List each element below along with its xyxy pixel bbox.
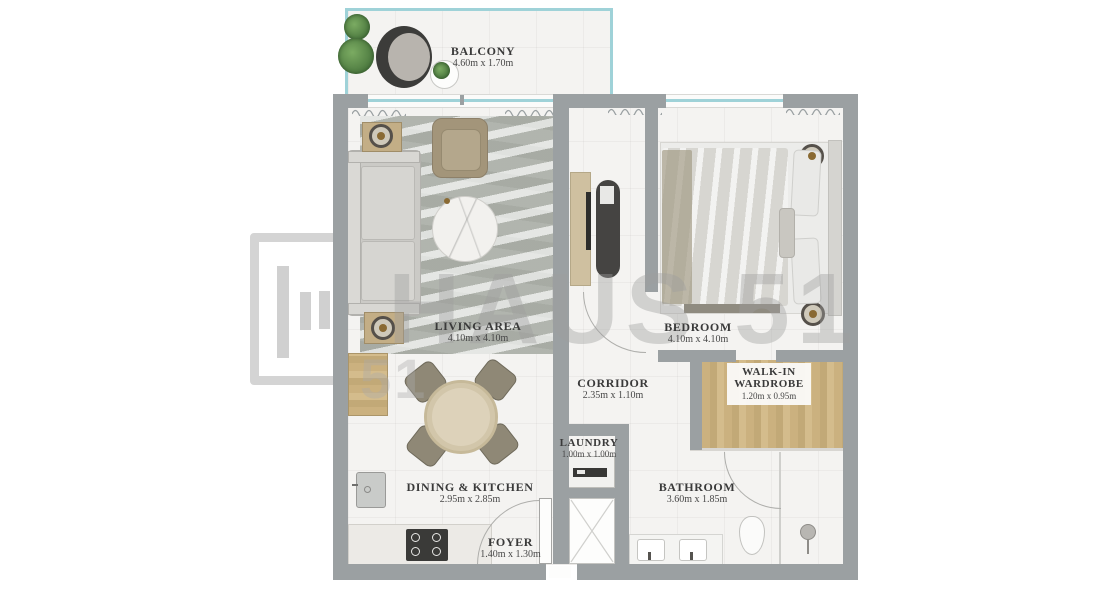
faucet (648, 552, 651, 560)
bedroom-dims: 4.10m x 4.10m (638, 334, 758, 347)
stove-burner (432, 547, 441, 556)
armchair (432, 118, 488, 178)
bed-blanket-fold (662, 150, 692, 304)
corridor-name: CORRIDOR (558, 377, 668, 390)
dining-table (424, 380, 498, 454)
table-lamp-center (379, 324, 387, 332)
insulation-hatch (786, 106, 840, 115)
watermark-logo-bar (277, 266, 289, 358)
nightstand-lamp-center (809, 310, 817, 318)
living-area-dims: 4.10m x 4.10m (408, 333, 548, 346)
bedroom-name: BEDROOM (638, 321, 758, 334)
sofa-armrest (348, 151, 420, 163)
bathroom-vanity (629, 534, 723, 566)
stove-burner (432, 533, 441, 542)
bedroom-label: BEDROOM 4.10m x 4.10m (638, 321, 758, 347)
entrance-recess (549, 566, 571, 578)
balcony-dims: 4.60m x 1.70m (423, 58, 543, 71)
living-area-label: LIVING AREA 4.10m x 4.10m (408, 320, 548, 346)
living-window-mullion (460, 95, 464, 105)
wall-right (843, 94, 858, 580)
bed-pillow (790, 237, 821, 304)
corridor-dims: 2.35m x 1.10m (558, 390, 668, 403)
bathroom-dims: 3.60m x 1.85m (637, 494, 757, 507)
stove-burner (411, 547, 420, 556)
sink (637, 539, 665, 561)
wall-corridor-bedroom (645, 108, 658, 292)
armchair-seat (441, 129, 481, 171)
wardrobe-name: WALK-IN WARDROBE (730, 366, 808, 391)
stove (406, 529, 448, 561)
wall-bedroom-bottom-b (776, 350, 843, 362)
balcony-plant (344, 14, 370, 40)
tv (586, 192, 591, 250)
wall-bottom-left (333, 564, 546, 580)
dining-kitchen-dims: 2.95m x 2.85m (395, 494, 545, 507)
corridor-label: CORRIDOR 2.35m x 1.10m (558, 377, 668, 403)
living-area-name: LIVING AREA (408, 320, 548, 333)
kitchen-wood-cabinet (348, 353, 388, 416)
coffee-table (432, 196, 498, 262)
sink (679, 539, 707, 561)
corridor-runner-label (600, 186, 614, 204)
bed-foot-bench (684, 304, 780, 313)
insulation-hatch (505, 107, 559, 116)
bed-headboard (828, 140, 842, 316)
foyer-dims: 1.40m x 1.30m (458, 549, 563, 562)
bed-cushion (779, 208, 795, 258)
table-lamp-center (377, 132, 385, 140)
watermark-logo-bar (300, 292, 311, 330)
kitchen-appliance (356, 472, 386, 508)
foyer-name: FOYER (458, 536, 563, 549)
coffee-table-accent (444, 198, 450, 204)
balcony-label: BALCONY 4.60m x 1.70m (423, 45, 543, 71)
bedroom-window-glass (666, 99, 783, 102)
bathroom-label: BATHROOM 3.60m x 1.85m (637, 481, 757, 507)
laundry-name: LAUNDRY (549, 437, 629, 449)
floor-plan-canvas: HAUS 51 51 (0, 0, 1100, 600)
dining-kitchen-name: DINING & KITCHEN (395, 481, 545, 494)
shaft-cross (569, 498, 615, 564)
nightstand-lamp-center (808, 152, 816, 160)
balcony-glass-top (345, 8, 613, 11)
bed-pillow (790, 149, 821, 216)
sofa-back (348, 151, 361, 315)
watermark-logo-bar (319, 291, 330, 329)
balcony-name: BALCONY (423, 45, 543, 58)
bathroom-name: BATHROOM (637, 481, 757, 494)
wall-laundry-bottom (553, 488, 629, 498)
faucet (690, 552, 693, 560)
insulation-hatch (608, 106, 662, 115)
wardrobe-bottom-line (690, 448, 843, 451)
wall-top-left-segment (333, 94, 368, 108)
wardrobe-dims: 1.20m x 0.95m (727, 391, 811, 402)
insulation-hatch (352, 107, 406, 116)
kitchen-appliance-handle (352, 484, 358, 486)
sofa-cushion (361, 241, 415, 301)
wardrobe-label: WALK-IN WARDROBE 1.20m x 0.95m (727, 363, 811, 405)
shower-head-stem (807, 539, 809, 554)
balcony-plant (338, 38, 374, 74)
dining-kitchen-label: DINING & KITCHEN 2.95m x 2.85m (395, 481, 545, 507)
wall-left (333, 94, 348, 580)
foyer-label: FOYER 1.40m x 1.30m (458, 536, 563, 562)
stove-burner (411, 533, 420, 542)
sofa-cushion (361, 166, 415, 240)
shower-head (800, 524, 816, 540)
sofa (347, 150, 421, 316)
balcony-glass-right (610, 8, 613, 96)
wall-wardrobe-left (690, 362, 702, 450)
washing-machine-door (577, 470, 585, 474)
wall-bottom-right (577, 564, 858, 580)
laundry-dims: 1.00m x 1.00m (549, 449, 629, 460)
kitchen-appliance-knob (364, 486, 371, 493)
laundry-label: LAUNDRY 1.00m x 1.00m (549, 437, 629, 461)
wall-bedroom-bottom-a (658, 350, 736, 362)
